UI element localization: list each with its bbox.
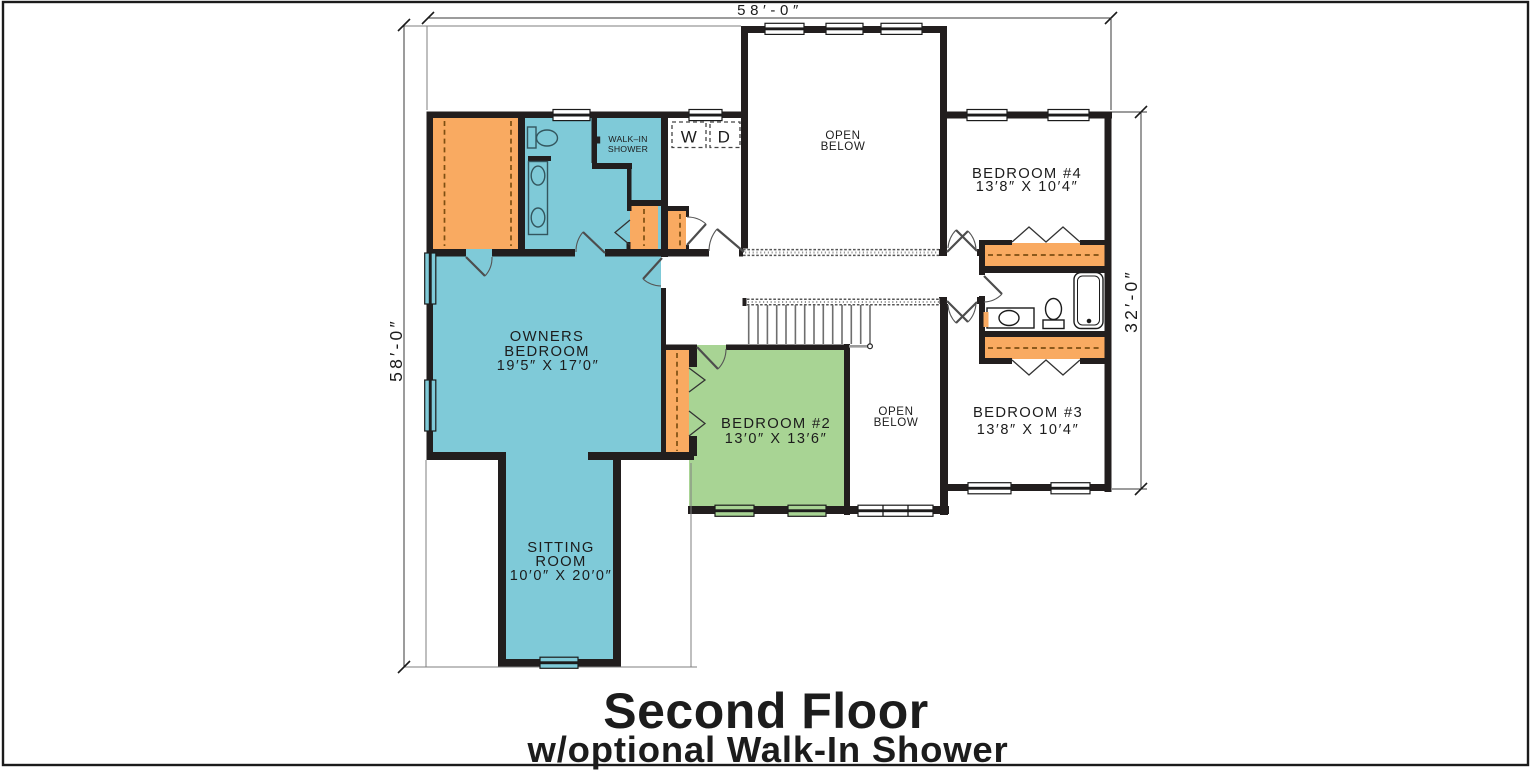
svg-text:19′5″ X 17′0″: 19′5″ X 17′0″	[497, 358, 600, 374]
svg-text:BEDROOM #3: BEDROOM #3	[973, 405, 1083, 421]
svg-text:w/optional Walk-In Shower: w/optional Walk-In Shower	[527, 729, 1009, 770]
svg-text:32′-0″: 32′-0″	[1121, 269, 1141, 333]
svg-text:13′8″ X 10′4″: 13′8″ X 10′4″	[976, 179, 1079, 195]
svg-text:BEDROOM #2: BEDROOM #2	[721, 416, 831, 432]
svg-text:W: W	[681, 128, 698, 147]
svg-text:WALK–IN: WALK–IN	[608, 134, 647, 144]
svg-text:58′-0″: 58′-0″	[737, 2, 803, 19]
svg-text:BELOW: BELOW	[874, 416, 919, 429]
svg-text:D: D	[718, 128, 731, 147]
svg-text:10′0″ X 20′0″: 10′0″ X 20′0″	[510, 568, 613, 584]
svg-text:OWNERS: OWNERS	[510, 329, 584, 345]
svg-text:58′-0″: 58′-0″	[386, 318, 406, 382]
svg-text:SHOWER: SHOWER	[608, 144, 648, 154]
svg-text:13′0″ X 13′6″: 13′0″ X 13′6″	[725, 431, 828, 447]
svg-text:BELOW: BELOW	[821, 140, 866, 153]
svg-text:13′8″ X 10′4″: 13′8″ X 10′4″	[977, 422, 1080, 438]
